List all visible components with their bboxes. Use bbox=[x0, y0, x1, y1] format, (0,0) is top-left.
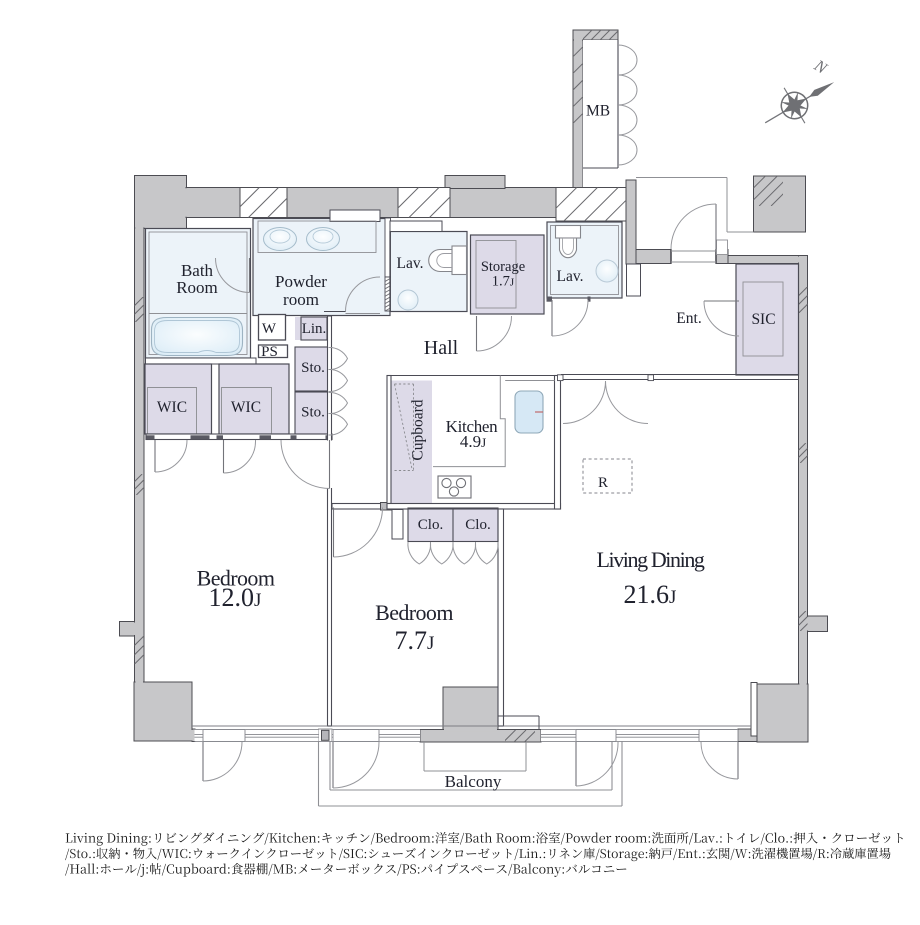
svg-text:Ent.: Ent. bbox=[676, 310, 701, 327]
svg-text:Clo.: Clo. bbox=[418, 517, 443, 533]
svg-text:MB: MB bbox=[586, 103, 610, 120]
svg-text:WIC: WIC bbox=[231, 399, 261, 416]
svg-text:Bedroom: Bedroom bbox=[375, 600, 453, 625]
svg-text:Powder: Powder bbox=[275, 272, 327, 291]
svg-text:Balcony: Balcony bbox=[445, 772, 502, 791]
svg-text:Clo.: Clo. bbox=[465, 517, 490, 533]
svg-text:Living Dining: Living Dining bbox=[596, 547, 704, 572]
svg-text:12.0J: 12.0J bbox=[209, 583, 262, 612]
svg-text:WIC: WIC bbox=[157, 399, 187, 416]
svg-text:PS: PS bbox=[261, 344, 278, 360]
svg-text:1.7J: 1.7J bbox=[492, 274, 515, 290]
svg-text:R: R bbox=[598, 475, 608, 491]
svg-text:4.9J: 4.9J bbox=[460, 432, 486, 451]
svg-text:SIC: SIC bbox=[751, 311, 775, 328]
svg-text:Lin.: Lin. bbox=[302, 321, 327, 337]
svg-text:Room: Room bbox=[176, 278, 218, 297]
svg-text:Sto.: Sto. bbox=[301, 405, 325, 421]
svg-text:21.6J: 21.6J bbox=[624, 580, 677, 609]
svg-text:W: W bbox=[262, 321, 277, 337]
svg-text:Hall: Hall bbox=[424, 337, 459, 359]
svg-text:room: room bbox=[283, 290, 319, 309]
svg-text:Sto.: Sto. bbox=[301, 360, 325, 376]
svg-text:Lav.: Lav. bbox=[557, 268, 584, 285]
svg-text:Lav.: Lav. bbox=[397, 255, 424, 272]
svg-text:Cupboard: Cupboard bbox=[410, 399, 427, 460]
